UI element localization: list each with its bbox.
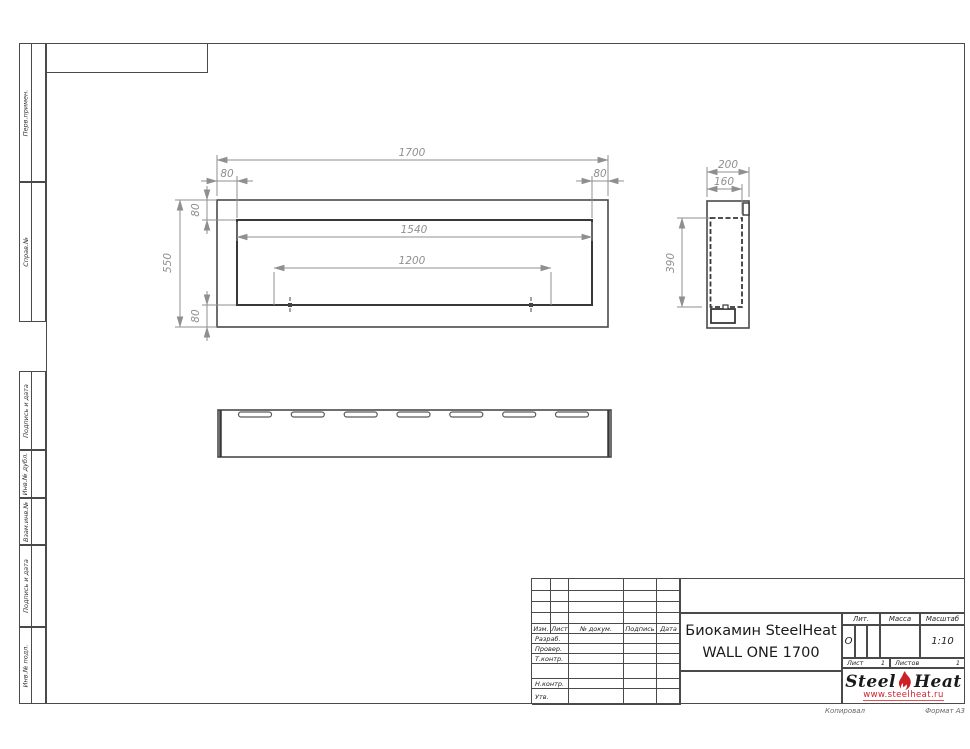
sheets-cell: Листов 1 — [890, 658, 965, 668]
copied-label: Копировал — [810, 707, 880, 715]
strip-label-col: Справ.№ — [20, 183, 32, 321]
strip-label-col: Инв.№ дубл. — [20, 451, 32, 497]
flame-icon — [897, 671, 913, 691]
logo-heat-text: Heat — [914, 674, 962, 691]
steelheat-logo: Steel Heat — [845, 671, 961, 691]
header-data: Дата — [657, 624, 681, 634]
document-title-cell: Биокамин SteelHeat WALL ONE 1700 — [680, 613, 842, 671]
logo-url: www.steelheat.ru — [863, 690, 944, 701]
role-prover: Провер. — [532, 644, 569, 654]
empty-cell — [680, 671, 842, 704]
stamp-cell — [569, 644, 624, 654]
stamp-cell — [624, 602, 657, 613]
strip-label-col: Взам.инв.№ — [20, 499, 32, 544]
sheet-label: Лист — [847, 659, 863, 667]
stamp-cell — [532, 579, 551, 591]
reference-number-box — [46, 43, 208, 73]
strip-label-col: Перв.примен. — [20, 44, 32, 181]
lit-value: О — [842, 625, 855, 658]
stamp-cell — [569, 679, 624, 689]
stamp-cell — [657, 579, 681, 591]
stamp-cell — [569, 602, 624, 613]
massa-value — [880, 625, 920, 658]
stamp-cell — [532, 602, 551, 613]
header-podpis: Подпись — [624, 624, 657, 634]
logo-cell: Steel Heat www.steelheat.ru — [842, 668, 965, 704]
stamp-cell — [657, 644, 681, 654]
stamp-cell — [551, 591, 569, 602]
role-utv: Утв. — [532, 689, 569, 705]
strip-box-podpis-data-1: Подпись и дата — [19, 371, 46, 450]
scale-value: 1:10 — [920, 625, 965, 658]
role-tkontr: Т.контр. — [532, 654, 569, 664]
stamp-cell — [657, 634, 681, 644]
stamp-cell — [569, 591, 624, 602]
doc-title-line1: Биокамин SteelHeat — [685, 620, 837, 642]
stamp-cell — [624, 679, 657, 689]
stamp-cell — [569, 664, 624, 679]
sheet-value: 1 — [881, 659, 885, 667]
stamp-cell — [532, 613, 551, 624]
stamp-cell — [657, 654, 681, 664]
stamp-cell — [624, 654, 657, 664]
stamp-cell — [624, 664, 657, 679]
stamp-cell — [569, 613, 624, 624]
massa-label: Масса — [880, 613, 920, 625]
strip-box-perv-primen: Перв.примен. — [19, 43, 46, 182]
stamp-cell — [624, 591, 657, 602]
lit-cell-2 — [855, 625, 867, 658]
stamp-cell — [551, 579, 569, 591]
drawing-sheet: Перв.примен. Справ.№ Подпись и дата Инв.… — [0, 0, 970, 749]
doc-title-line2: WALL ONE 1700 — [702, 642, 819, 664]
strip-label-col: Подпись и дата — [20, 372, 32, 449]
stamp-cell — [569, 689, 624, 705]
stamp-cell — [551, 613, 569, 624]
strip-box-inv-dubl: Инв.№ дубл. — [19, 450, 46, 498]
strip-label: Подпись и дата — [22, 559, 30, 613]
lit-label: Лит. — [842, 613, 880, 625]
stamp-cell — [532, 591, 551, 602]
strip-label-col: Подпись и дата — [20, 546, 32, 626]
strip-label: Подпись и дата — [22, 384, 30, 438]
format-label: Формат А3 — [905, 707, 965, 715]
sheets-label: Листов — [895, 659, 919, 667]
strip-label: Перв.примен. — [22, 89, 30, 136]
strip-label-col: Инв.№ подл. — [20, 628, 32, 703]
stamp-cell — [569, 654, 624, 664]
header-doc: № докум. — [569, 624, 624, 634]
strip-box-vzam-inv: Взам.инв.№ — [19, 498, 46, 545]
sheet-cell: Лист 1 — [842, 658, 890, 668]
designation-cell — [680, 578, 965, 613]
stamp-cell — [657, 613, 681, 624]
strip-label: Справ.№ — [22, 237, 30, 267]
stamp-cell — [657, 664, 681, 679]
title-block-change-table: Изм. Лист № докум. Подпись Дата Разраб. … — [531, 578, 680, 704]
scale-label: Масштаб — [920, 613, 965, 625]
stamp-cell — [624, 579, 657, 591]
stamp-cell — [532, 664, 569, 679]
strip-box-podpis-data-2: Подпись и дата — [19, 545, 46, 627]
sheets-value: 1 — [956, 659, 960, 667]
stamp-cell — [624, 644, 657, 654]
strip-box-sprav-no: Справ.№ — [19, 182, 46, 322]
stamp-cell — [657, 602, 681, 613]
stamp-cell — [657, 591, 681, 602]
stamp-cell — [569, 579, 624, 591]
header-izm: Изм. — [532, 624, 551, 634]
strip-label: Инв.№ подл. — [22, 644, 30, 687]
strip-label: Взам.инв.№ — [22, 502, 30, 542]
strip-label: Инв.№ дубл. — [22, 453, 30, 495]
lit-cell-3 — [867, 625, 880, 658]
role-razrab: Разраб. — [532, 634, 569, 644]
strip-box-inv-podl: Инв.№ подл. — [19, 627, 46, 704]
role-nkontr: Н.контр. — [532, 679, 569, 689]
logo-steel-text: Steel — [845, 674, 896, 691]
stamp-cell — [569, 634, 624, 644]
header-list: Лист — [551, 624, 569, 634]
stamp-cell — [657, 689, 681, 705]
stamp-cell — [551, 602, 569, 613]
stamp-cell — [624, 634, 657, 644]
stamp-cell — [657, 679, 681, 689]
stamp-cell — [624, 613, 657, 624]
stamp-cell — [624, 689, 657, 705]
